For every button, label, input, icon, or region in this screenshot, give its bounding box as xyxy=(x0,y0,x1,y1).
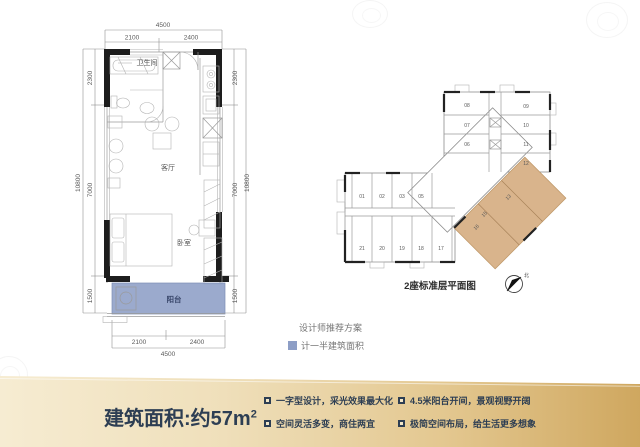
dim-top-left: 2100 xyxy=(125,35,140,42)
legend-recommend-label: 设计师推荐方案 xyxy=(288,322,364,334)
compass-north-label: 北 xyxy=(524,272,529,279)
feature-list: 一字型设计，采光效果最大化 空间灵活多变，商住两宜 4.5米阳台开间，景观视野开… xyxy=(264,395,536,428)
svg-text:09: 09 xyxy=(523,104,529,110)
svg-text:06: 06 xyxy=(464,142,470,148)
overview-caption: 2座标准层平面图 xyxy=(404,280,476,292)
watermark-icon xyxy=(586,2,628,38)
dimensions-top: 4500 2100 2400 xyxy=(105,22,222,52)
bathroom-label: 卫生间 xyxy=(137,58,158,67)
svg-text:10: 10 xyxy=(523,123,529,129)
feature-bullet-icon xyxy=(398,397,405,404)
feature-bullet-icon xyxy=(264,420,271,427)
dimensions-right: 2300 7000 1500 10800 xyxy=(222,49,251,313)
svg-text:20: 20 xyxy=(379,246,385,252)
living-label: 客厅 xyxy=(161,163,175,172)
building-area-label: 建筑面积:约57m2 xyxy=(104,402,257,431)
svg-text:21: 21 xyxy=(359,246,365,252)
svg-text:08: 08 xyxy=(464,103,470,109)
dim-bottom-total: 4500 xyxy=(161,351,176,358)
building-area-text: 建筑面积:约57m xyxy=(104,408,251,430)
svg-text:01: 01 xyxy=(359,194,365,200)
dimensions-left: 2300 7000 1500 10800 xyxy=(75,49,107,313)
feature-text: 极简空间布局，给生活更多想象 xyxy=(410,417,536,430)
dim-left-top: 2300 xyxy=(87,70,94,85)
balcony-label: 阳台 xyxy=(167,294,182,304)
feature-text: 空间灵活多变，商住两宜 xyxy=(276,417,375,430)
dim-top-right: 2400 xyxy=(184,35,199,42)
dim-left-total: 10800 xyxy=(75,174,82,192)
entry xyxy=(163,52,198,70)
dim-bottom-right: 2400 xyxy=(190,339,205,346)
half-area-swatch-icon xyxy=(288,341,297,350)
feature-item: 空间灵活多变，商住两宜 xyxy=(264,418,398,428)
watermark-icon xyxy=(352,0,388,28)
feature-item: 极简空间布局，给生活更多想象 xyxy=(398,418,536,428)
dim-left-bottom: 1500 xyxy=(87,288,94,303)
svg-text:19: 19 xyxy=(399,246,405,252)
feature-item: 一字型设计，采光效果最大化 xyxy=(264,395,398,405)
dim-top-total: 4500 xyxy=(156,22,171,29)
balcony: 阳台 xyxy=(103,283,225,323)
building-overview: 01 02 03 05 21 20 19 18 17 08 07 06 09 1… xyxy=(330,60,640,310)
dimensions-bottom: 2100 2400 4500 xyxy=(112,320,225,358)
svg-text:18: 18 xyxy=(418,246,424,252)
svg-text:05: 05 xyxy=(418,194,424,200)
feature-bullet-icon xyxy=(398,420,405,427)
dim-right-bottom: 1500 xyxy=(232,288,239,303)
bathroom: 卫生间 xyxy=(107,52,163,122)
svg-text:03: 03 xyxy=(399,194,405,200)
svg-text:02: 02 xyxy=(379,194,385,200)
compass-icon: 北 xyxy=(506,272,530,293)
svg-text:17: 17 xyxy=(438,246,444,252)
building-area-sup: 2 xyxy=(251,408,257,420)
dim-right-mid: 7000 xyxy=(232,182,239,197)
svg-text:12: 12 xyxy=(523,161,529,167)
dim-right-top: 2300 xyxy=(232,70,239,85)
svg-text:07: 07 xyxy=(464,123,470,129)
legend: 设计师推荐方案 计一半建筑面积 xyxy=(288,322,364,352)
legend-half-area-label: 计一半建筑面积 xyxy=(301,339,364,352)
svg-text:11: 11 xyxy=(523,142,528,148)
info-banner: 建筑面积:约57m2 一字型设计，采光效果最大化 空间灵活多变，商住两宜 4.5… xyxy=(0,372,640,447)
bedroom: 卧室 xyxy=(110,214,222,284)
feature-bullet-icon xyxy=(264,397,271,404)
feature-text: 4.5米阳台开间，景观视野开阔 xyxy=(410,394,531,407)
bedroom-label: 卧室 xyxy=(177,238,191,247)
dim-left-mid: 7000 xyxy=(87,182,94,197)
dim-right-total: 10800 xyxy=(244,174,251,192)
dim-bottom-left: 2100 xyxy=(132,339,147,346)
feature-text: 一字型设计，采光效果最大化 xyxy=(276,394,393,407)
floorplan-page: 4500 2100 2400 2100 2400 4500 2300 7000 … xyxy=(0,0,640,447)
unit-floorplan: 4500 2100 2400 2100 2400 4500 2300 7000 … xyxy=(55,12,265,360)
feature-item: 4.5米阳台开间，景观视野开阔 xyxy=(398,395,536,405)
